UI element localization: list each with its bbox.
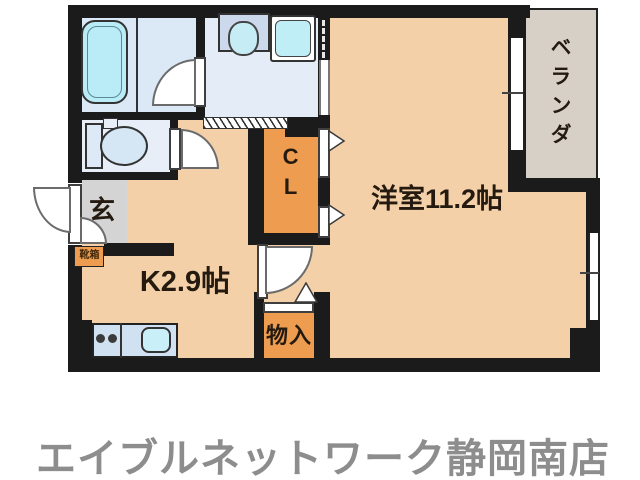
closet-door-arrow-lower bbox=[328, 204, 346, 226]
wall-bottom bbox=[68, 358, 600, 372]
washroom-accordion-door bbox=[203, 117, 288, 129]
kitchen-label: K2.9帖 bbox=[130, 267, 240, 297]
right-wall-window bbox=[588, 233, 600, 320]
kitchen-sink bbox=[141, 327, 171, 353]
stove-burner-left bbox=[96, 334, 105, 343]
wall-under-entrance bbox=[104, 243, 174, 256]
wall-closet-left bbox=[248, 125, 264, 245]
wall-left-upper bbox=[68, 5, 82, 183]
floor-plan: 洋室11.2帖 K2.9帖 CL 物入 玄 靴箱 ベランダ エイブルネットワーク… bbox=[0, 0, 640, 480]
kitchen-counter-divider bbox=[120, 323, 122, 358]
veranda-label: ベランダ bbox=[548, 36, 570, 152]
washing-machine-pan bbox=[270, 15, 316, 62]
wall-bath-bottom bbox=[68, 112, 205, 120]
wall-toilet-bottom bbox=[68, 172, 178, 180]
wall-closet-top bbox=[285, 117, 318, 137]
wash-basin-bowl bbox=[228, 21, 259, 56]
veranda-window bbox=[509, 38, 525, 150]
toilet-bowl bbox=[100, 126, 148, 166]
storage-door bbox=[263, 302, 314, 313]
entry-door-arc bbox=[33, 187, 71, 233]
washroom-opening bbox=[319, 60, 330, 115]
right-window-tick bbox=[580, 272, 599, 274]
bathtub bbox=[81, 20, 128, 104]
main-room-label: 洋室11.2帖 bbox=[352, 185, 522, 213]
storage-door-arrow bbox=[294, 282, 318, 303]
store-name-text: エイブルネットワーク静岡南店 bbox=[36, 426, 610, 480]
shoe-box-label: 靴箱 bbox=[76, 251, 103, 262]
wall-kitchen-pillar bbox=[68, 320, 92, 360]
closet-label: CL bbox=[279, 144, 302, 204]
bathroom-partition-line bbox=[136, 18, 138, 112]
closet-door-arrow-upper bbox=[328, 130, 346, 152]
stove-burner-right bbox=[108, 334, 117, 343]
veranda-window-tick bbox=[502, 92, 523, 94]
entrance-label: 玄 bbox=[89, 197, 115, 224]
washroom-rail-dashed bbox=[322, 20, 328, 58]
toilet-door-leaf bbox=[169, 128, 181, 170]
wall-corner-pillar bbox=[570, 328, 600, 372]
storage-label: 物入 bbox=[263, 324, 315, 347]
